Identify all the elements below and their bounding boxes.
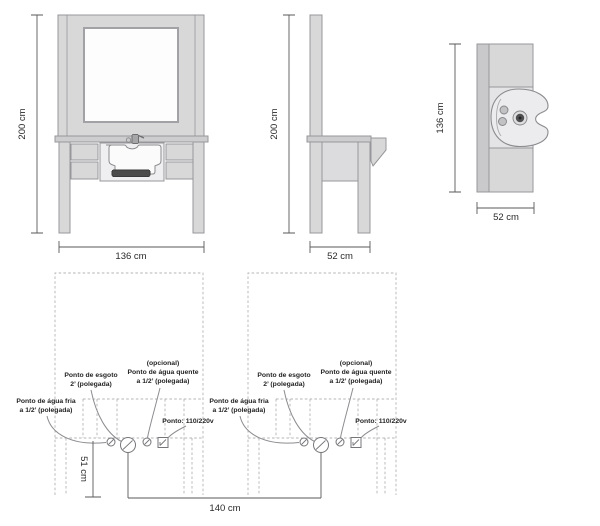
top-back-strip (477, 44, 489, 192)
hot-water-point (143, 438, 151, 446)
hot-water-point-label: (opcional) Ponto de água quente a 1/2’ (… (128, 360, 199, 385)
front-height-dimension-label: 200 cm (17, 108, 28, 139)
cold-water-point-label: Ponto de água fria a 1/2’ (polegada) (209, 398, 269, 414)
svg-text:Ponto de esgoto: Ponto de esgoto (257, 372, 310, 379)
front-width-dimension-label: 136 cm (115, 251, 146, 262)
svg-text:a 1/2’ (polegada): a 1/2’ (polegada) (20, 407, 73, 414)
side-height-dimension: 200 cm (269, 15, 295, 233)
power-point-label: Ponto: 110/220v (355, 418, 407, 425)
bowl-drain (513, 111, 527, 125)
svg-text:Ponto de água quente: Ponto de água quente (128, 369, 199, 376)
power-point-label: Ponto: 110/220v (162, 418, 214, 425)
front-height-dimension: 200 cm (17, 15, 43, 233)
right-shelf-unit (166, 144, 193, 179)
power-outlet-point (158, 438, 168, 448)
svg-text:Ponto de água fria: Ponto de água fria (16, 398, 76, 405)
drain-point (121, 438, 136, 453)
hot-water-leader (148, 388, 161, 438)
plan-height-dimension: 51 cm (78, 441, 101, 497)
cold-water-point-label: Ponto de água fria a 1/2’ (polegada) (16, 398, 76, 414)
front-left-leg (59, 142, 70, 233)
side-view: 200 cm 52 cm (269, 15, 386, 262)
side-front-leg (358, 142, 370, 233)
mirror (84, 28, 178, 122)
front-right-leg (193, 142, 204, 233)
plan-station-right: Ponto de esgoto 2’ (polegada) (opcional)… (209, 273, 407, 495)
power-leader (361, 426, 379, 438)
drain-point (314, 438, 329, 453)
svg-text:Ponto de esgoto: Ponto de esgoto (64, 372, 117, 379)
front-view: 200 cm 136 cm (17, 15, 208, 262)
plan-spacing-dimension-label: 140 cm (209, 503, 240, 514)
svg-text:(opcional): (opcional) (340, 360, 372, 367)
hot-water-point-label: (opcional) Ponto de água quente a 1/2’ (… (321, 360, 392, 385)
side-back-panel (310, 15, 322, 233)
towel-bar (112, 170, 150, 177)
plan-spacing-dimension: 140 cm (128, 453, 321, 514)
side-width-dimension-label: 52 cm (327, 251, 353, 262)
side-cabinet-box (322, 142, 358, 181)
svg-text:2’ (polegada): 2’ (polegada) (263, 381, 305, 388)
svg-text:Ponto de água quente: Ponto de água quente (321, 369, 392, 376)
countertop-side (307, 136, 371, 142)
svg-text:(opcional): (opcional) (147, 360, 179, 367)
hot-water-point (336, 438, 344, 446)
svg-text:2’ (polegada): 2’ (polegada) (70, 381, 112, 388)
svg-text:a 1/2’ (polegada): a 1/2’ (polegada) (137, 378, 190, 385)
drain-point-label: Ponto de esgoto 2’ (polegada) (257, 372, 310, 388)
technical-drawing-canvas: 200 cm 136 cm 200 cm (0, 0, 600, 526)
top-width-dimension-label: 52 cm (493, 212, 519, 223)
top-depth-dimension: 136 cm (435, 44, 461, 192)
side-height-dimension-label: 200 cm (269, 108, 280, 139)
side-bowl-profile (371, 138, 386, 166)
plan-height-dimension-label: 51 cm (78, 456, 89, 482)
cold-water-point (300, 438, 308, 446)
front-width-dimension: 136 cm (59, 241, 204, 262)
drain-point-label: Ponto de esgoto 2’ (polegada) (64, 372, 117, 388)
hot-water-leader (341, 388, 354, 438)
svg-text:a 1/2’ (polegada): a 1/2’ (polegada) (330, 378, 383, 385)
top-view: 136 cm 52 cm (435, 44, 548, 223)
top-depth-dimension-label: 136 cm (435, 102, 446, 133)
power-outlet-point (351, 438, 361, 448)
svg-text:a 1/2’ (polegada): a 1/2’ (polegada) (213, 407, 266, 414)
top-width-dimension: 52 cm (477, 202, 534, 223)
power-leader (168, 426, 186, 438)
countertop-front (55, 136, 208, 142)
plan-station-left: Ponto de esgoto 2’ (polegada) (opcional)… (16, 273, 214, 495)
left-shelf-unit (71, 144, 98, 179)
side-width-dimension: 52 cm (310, 241, 370, 262)
svg-text:Ponto de água fria: Ponto de água fria (209, 398, 269, 405)
cold-water-point (107, 438, 115, 446)
